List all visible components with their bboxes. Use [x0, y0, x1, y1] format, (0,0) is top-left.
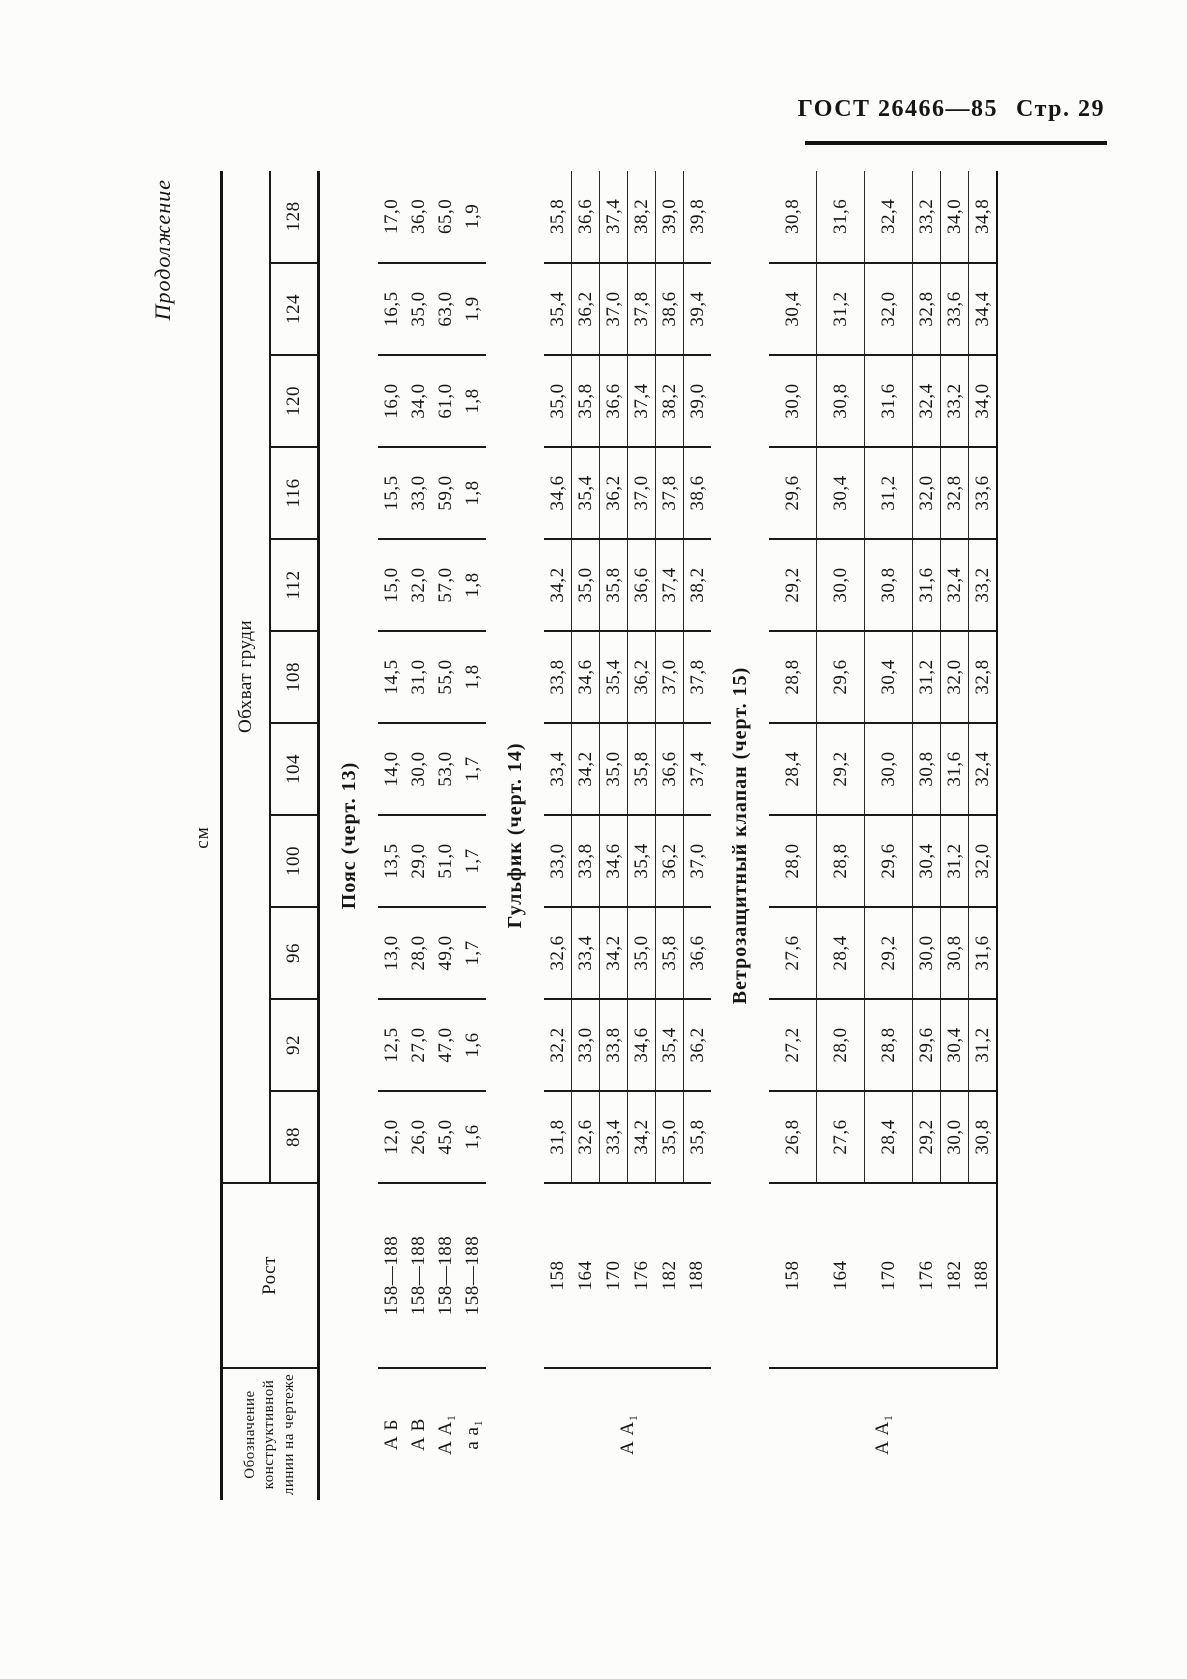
value-cell: 30,0 — [913, 907, 941, 999]
size-column-header: 88 — [270, 1091, 319, 1183]
height-cell: 188 — [684, 1183, 712, 1368]
value-cell: 37,8 — [628, 263, 656, 355]
value-cell: 61,0 — [432, 355, 459, 447]
value-cell: 38,2 — [628, 171, 656, 263]
value-cell: 31,6 — [969, 907, 998, 999]
value-cell: 33,4 — [600, 1091, 628, 1183]
value-cell: 16,0 — [378, 355, 405, 447]
value-cell: 1,8 — [459, 631, 486, 723]
value-cell: 28,4 — [817, 907, 865, 999]
value-cell: 28,4 — [769, 723, 817, 815]
value-cell: 35,4 — [600, 631, 628, 723]
value-cell: 63,0 — [432, 263, 459, 355]
value-cell: 29,6 — [865, 815, 913, 907]
value-cell: 1,8 — [459, 355, 486, 447]
value-cell: 33,8 — [544, 631, 572, 723]
value-cell: 31,6 — [941, 723, 969, 815]
value-cell: 30,0 — [405, 723, 432, 815]
value-cell: 30,0 — [817, 539, 865, 631]
value-cell: 34,0 — [969, 355, 998, 447]
value-cell: 31,8 — [544, 1091, 572, 1183]
value-cell: 45,0 — [432, 1091, 459, 1183]
value-cell: 30,8 — [865, 539, 913, 631]
height-cell: 164 — [572, 1183, 600, 1368]
size-column-header: 112 — [270, 539, 319, 631]
value-cell: 33,2 — [969, 539, 998, 631]
value-cell: 36,2 — [600, 447, 628, 539]
value-cell: 37,4 — [684, 723, 712, 815]
value-cell: 31,2 — [941, 815, 969, 907]
standard-number: ГОСТ 26466—85 — [798, 96, 998, 122]
value-cell: 39,0 — [656, 171, 684, 263]
value-cell: 31,2 — [969, 999, 998, 1091]
value-cell: 37,4 — [628, 355, 656, 447]
value-cell: 14,0 — [378, 723, 405, 815]
value-cell: 36,2 — [684, 999, 712, 1091]
value-cell: 36,6 — [628, 539, 656, 631]
section-title: Пояс (черт. 13) — [319, 171, 379, 1500]
value-cell: 30,0 — [769, 355, 817, 447]
chest-girth-header: Обхват груди — [222, 171, 271, 1183]
value-cell: 36,6 — [600, 355, 628, 447]
value-cell: 12,0 — [378, 1091, 405, 1183]
value-cell: 35,8 — [628, 723, 656, 815]
value-cell: 32,0 — [865, 263, 913, 355]
value-cell: 36,0 — [405, 171, 432, 263]
value-cell: 37,8 — [684, 631, 712, 723]
value-cell: 35,0 — [628, 907, 656, 999]
size-column-header: 120 — [270, 355, 319, 447]
height-cell: 158—188 — [378, 1183, 405, 1368]
value-cell: 1,9 — [459, 171, 486, 263]
value-cell: 57,0 — [432, 539, 459, 631]
value-cell: 34,6 — [544, 447, 572, 539]
value-cell: 28,8 — [865, 999, 913, 1091]
value-cell: 32,0 — [969, 815, 998, 907]
size-column-header: 128 — [270, 171, 319, 263]
value-cell: 29,2 — [865, 907, 913, 999]
value-cell: 35,8 — [600, 539, 628, 631]
size-column-header: 100 — [270, 815, 319, 907]
value-cell: 13,5 — [378, 815, 405, 907]
line-designation-cell: А А₁ — [544, 1368, 711, 1500]
value-cell: 30,8 — [769, 171, 817, 263]
value-cell: 31,0 — [405, 631, 432, 723]
value-cell: 34,2 — [600, 907, 628, 999]
measurements-table: Обозначение конструктивной линии на черт… — [220, 171, 998, 1500]
value-cell: 34,2 — [544, 539, 572, 631]
value-cell: 32,8 — [969, 631, 998, 723]
value-cell: 33,0 — [572, 999, 600, 1091]
value-cell: 30,4 — [913, 815, 941, 907]
value-cell: 39,4 — [684, 263, 712, 355]
value-cell: 35,8 — [544, 171, 572, 263]
value-cell: 36,2 — [656, 815, 684, 907]
value-cell: 29,6 — [913, 999, 941, 1091]
value-cell: 35,0 — [600, 723, 628, 815]
value-cell: 28,8 — [817, 815, 865, 907]
value-cell: 12,5 — [378, 999, 405, 1091]
value-cell: 27,6 — [769, 907, 817, 999]
value-cell: 29,2 — [769, 539, 817, 631]
value-cell: 36,2 — [572, 263, 600, 355]
line-designation-cell: А А₁ — [769, 1368, 997, 1500]
value-cell: 35,8 — [684, 1091, 712, 1183]
value-cell: 30,8 — [913, 723, 941, 815]
value-cell: 13,0 — [378, 907, 405, 999]
value-cell: 32,4 — [913, 355, 941, 447]
value-cell: 34,6 — [572, 631, 600, 723]
value-cell: 1,6 — [459, 1091, 486, 1183]
value-cell: 29,6 — [769, 447, 817, 539]
value-cell: 33,8 — [572, 815, 600, 907]
value-cell: 34,2 — [572, 723, 600, 815]
size-column-header: 108 — [270, 631, 319, 723]
value-cell: 51,0 — [432, 815, 459, 907]
value-cell: 39,8 — [684, 171, 712, 263]
height-cell: 176 — [628, 1183, 656, 1368]
value-cell: 30,4 — [817, 447, 865, 539]
value-cell: 33,6 — [969, 447, 998, 539]
scanned-standard-page: ГОСТ 26466—85Стр. 29 Продолжение см Обоз… — [0, 0, 1187, 1679]
value-cell: 30,0 — [865, 723, 913, 815]
value-cell: 32,8 — [941, 447, 969, 539]
value-cell: 30,8 — [941, 907, 969, 999]
value-cell: 37,0 — [684, 815, 712, 907]
height-cell: 182 — [656, 1183, 684, 1368]
value-cell: 37,4 — [656, 539, 684, 631]
height-cell: 170 — [600, 1183, 628, 1368]
value-cell: 31,2 — [817, 263, 865, 355]
value-cell: 15,5 — [378, 447, 405, 539]
size-column-header: 104 — [270, 723, 319, 815]
value-cell: 36,2 — [628, 631, 656, 723]
value-cell: 31,2 — [865, 447, 913, 539]
value-cell: 36,6 — [684, 907, 712, 999]
value-cell: 1,6 — [459, 999, 486, 1091]
value-cell: 31,6 — [865, 355, 913, 447]
value-cell: 32,6 — [544, 907, 572, 999]
line-designation-cell: А А₁ — [432, 1368, 459, 1500]
value-cell: 49,0 — [432, 907, 459, 999]
value-cell: 30,0 — [941, 1091, 969, 1183]
height-cell: 182 — [941, 1183, 969, 1368]
height-cell: 188 — [969, 1183, 998, 1368]
units-label: см — [192, 175, 216, 1500]
value-cell: 30,4 — [769, 263, 817, 355]
value-cell: 32,0 — [405, 539, 432, 631]
value-cell: 59,0 — [432, 447, 459, 539]
line-designation-cell: а а₁ — [459, 1368, 486, 1500]
value-cell: 31,2 — [913, 631, 941, 723]
line-designation-cell: А В — [405, 1368, 432, 1500]
size-column-header: 124 — [270, 263, 319, 355]
value-cell: 1,8 — [459, 539, 486, 631]
value-cell: 26,0 — [405, 1091, 432, 1183]
value-cell: 47,0 — [432, 999, 459, 1091]
value-cell: 35,4 — [544, 263, 572, 355]
height-cell: 158—188 — [459, 1183, 486, 1368]
value-cell: 28,8 — [769, 631, 817, 723]
value-cell: 35,0 — [572, 539, 600, 631]
value-cell: 65,0 — [432, 171, 459, 263]
value-cell: 30,8 — [969, 1091, 998, 1183]
designation-column-header: Обозначение конструктивной линии на черт… — [222, 1368, 319, 1500]
value-cell: 34,6 — [600, 815, 628, 907]
value-cell: 35,4 — [628, 815, 656, 907]
value-cell: 33,4 — [572, 907, 600, 999]
value-cell: 32,0 — [941, 631, 969, 723]
value-cell: 29,6 — [817, 631, 865, 723]
value-cell: 35,0 — [656, 1091, 684, 1183]
value-cell: 32,2 — [544, 999, 572, 1091]
value-cell: 28,0 — [405, 907, 432, 999]
height-cell: 158 — [544, 1183, 572, 1368]
page-number: Стр. 29 — [1016, 96, 1105, 122]
value-cell: 1,9 — [459, 263, 486, 355]
value-cell: 35,8 — [656, 907, 684, 999]
value-cell: 34,4 — [969, 263, 998, 355]
value-cell: 1,7 — [459, 723, 486, 815]
value-cell: 33,2 — [941, 355, 969, 447]
section-title: Гульфик (черт. 14) — [486, 171, 544, 1500]
value-cell: 27,6 — [817, 1091, 865, 1183]
value-cell: 34,6 — [628, 999, 656, 1091]
value-cell: 37,8 — [656, 447, 684, 539]
value-cell: 33,6 — [941, 263, 969, 355]
value-cell: 34,8 — [969, 171, 998, 263]
value-cell: 32,8 — [913, 263, 941, 355]
value-cell: 35,8 — [572, 355, 600, 447]
value-cell: 37,0 — [628, 447, 656, 539]
value-cell: 29,2 — [913, 1091, 941, 1183]
value-cell: 30,4 — [941, 999, 969, 1091]
value-cell: 55,0 — [432, 631, 459, 723]
height-cell: 176 — [913, 1183, 941, 1368]
value-cell: 31,6 — [913, 539, 941, 631]
height-cell: 170 — [865, 1183, 913, 1368]
value-cell: 32,0 — [913, 447, 941, 539]
value-cell: 36,6 — [656, 723, 684, 815]
value-cell: 53,0 — [432, 723, 459, 815]
value-cell: 26,8 — [769, 1091, 817, 1183]
value-cell: 29,2 — [817, 723, 865, 815]
value-cell: 38,2 — [656, 355, 684, 447]
height-cell: 158—188 — [405, 1183, 432, 1368]
value-cell: 35,0 — [405, 263, 432, 355]
value-cell: 31,6 — [817, 171, 865, 263]
value-cell: 37,4 — [600, 171, 628, 263]
value-cell: 33,0 — [405, 447, 432, 539]
value-cell: 35,4 — [572, 447, 600, 539]
value-cell: 15,0 — [378, 539, 405, 631]
size-column-header: 116 — [270, 447, 319, 539]
value-cell: 27,0 — [405, 999, 432, 1091]
value-cell: 34,0 — [941, 171, 969, 263]
value-cell: 30,8 — [817, 355, 865, 447]
height-cell: 164 — [817, 1183, 865, 1368]
value-cell: 38,2 — [684, 539, 712, 631]
value-cell: 28,4 — [865, 1091, 913, 1183]
page-header: ГОСТ 26466—85Стр. 29 — [798, 96, 1105, 123]
line-designation-cell: А Б — [378, 1368, 405, 1500]
header-rule — [805, 141, 1107, 145]
value-cell: 28,0 — [817, 999, 865, 1091]
value-cell: 32,4 — [941, 539, 969, 631]
value-cell: 32,6 — [572, 1091, 600, 1183]
section-title: Ветрозащитный клапан (черт. 15) — [711, 171, 769, 1500]
value-cell: 36,6 — [572, 171, 600, 263]
value-cell: 1,7 — [459, 815, 486, 907]
value-cell: 37,0 — [656, 631, 684, 723]
value-cell: 27,2 — [769, 999, 817, 1091]
value-cell: 33,4 — [544, 723, 572, 815]
value-cell: 30,4 — [865, 631, 913, 723]
value-cell: 32,4 — [865, 171, 913, 263]
value-cell: 35,0 — [544, 355, 572, 447]
value-cell: 34,2 — [628, 1091, 656, 1183]
height-cell: 158 — [769, 1183, 817, 1368]
value-cell: 35,4 — [656, 999, 684, 1091]
height-column-header: Рост — [222, 1183, 319, 1368]
value-cell: 32,4 — [969, 723, 998, 815]
value-cell: 33,0 — [544, 815, 572, 907]
value-cell: 38,6 — [656, 263, 684, 355]
size-column-header: 92 — [270, 999, 319, 1091]
value-cell: 37,0 — [600, 263, 628, 355]
value-cell: 39,0 — [684, 355, 712, 447]
value-cell: 33,2 — [913, 171, 941, 263]
value-cell: 29,0 — [405, 815, 432, 907]
value-cell: 33,8 — [600, 999, 628, 1091]
value-cell: 34,0 — [405, 355, 432, 447]
value-cell: 16,5 — [378, 263, 405, 355]
value-cell: 1,7 — [459, 907, 486, 999]
height-cell: 158—188 — [432, 1183, 459, 1368]
rotated-table-block: Продолжение см Обозначение конструктивно… — [150, 175, 1030, 1500]
continuation-label: Продолжение — [150, 175, 192, 1500]
value-cell: 14,5 — [378, 631, 405, 723]
size-column-header: 96 — [270, 907, 319, 999]
value-cell: 17,0 — [378, 171, 405, 263]
value-cell: 38,6 — [684, 447, 712, 539]
value-cell: 1,8 — [459, 447, 486, 539]
value-cell: 28,0 — [769, 815, 817, 907]
